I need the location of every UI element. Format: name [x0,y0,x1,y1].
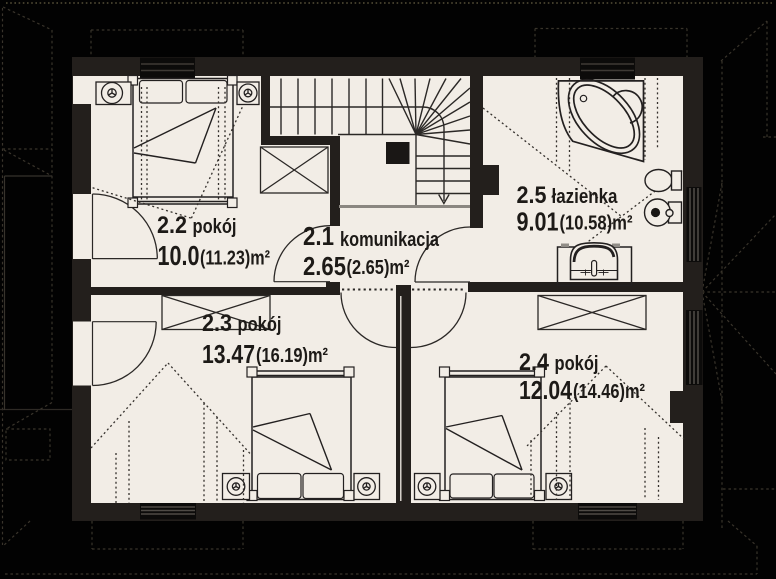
svg-text:2.5: 2.5 [517,182,547,209]
svg-text:9.01: 9.01 [517,207,559,237]
svg-text:13.47: 13.47 [202,339,255,369]
svg-text:pokój: pokój [238,313,282,336]
svg-text:2.3: 2.3 [202,310,232,337]
svg-text:komunikacja: komunikacja [340,228,439,251]
svg-text:2.2: 2.2 [157,212,187,239]
svg-text:pokój: pokój [193,215,237,238]
svg-text:2.4: 2.4 [519,349,550,376]
svg-text:pokój: pokój [555,352,599,375]
svg-text:10.0: 10.0 [158,240,200,271]
svg-text:12.04: 12.04 [519,375,572,405]
svg-text:(11.23)m²: (11.23)m² [200,248,270,270]
svg-text:2.65: 2.65 [303,251,346,281]
svg-text:łazienka: łazienka [552,185,618,208]
svg-text:(2.65)m²: (2.65)m² [347,257,410,279]
svg-text:(14.46)m²: (14.46)m² [573,381,645,403]
svg-text:(16.19)m²: (16.19)m² [256,345,328,367]
svg-text:(10.58)m²: (10.58)m² [560,213,633,235]
svg-text:2.1: 2.1 [303,221,334,251]
